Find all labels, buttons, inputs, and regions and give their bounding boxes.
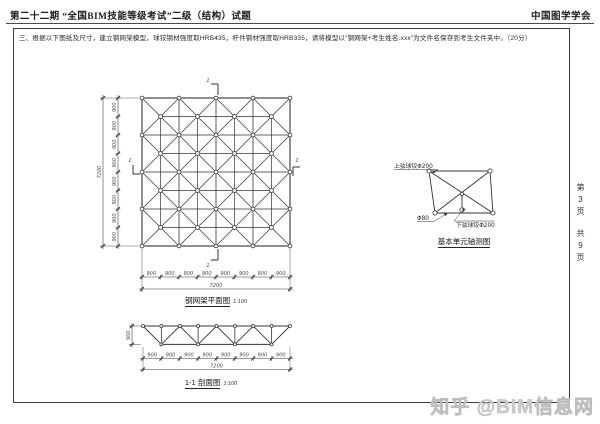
node-ball xyxy=(270,189,274,193)
node-ball xyxy=(214,244,218,248)
dim-label: 7200 xyxy=(210,363,223,369)
node-ball xyxy=(251,96,255,100)
dim-label: 900 xyxy=(258,352,268,358)
dim-label: 1 xyxy=(128,158,132,164)
dim-label: 900 xyxy=(220,271,230,277)
node-ball xyxy=(214,133,218,137)
member-line xyxy=(490,171,493,213)
node-ball xyxy=(491,211,495,215)
dim-label: 900 xyxy=(126,330,132,340)
node-ball xyxy=(159,226,163,230)
node-ball xyxy=(215,325,218,328)
node-ball xyxy=(270,343,273,346)
dim-label: 900 xyxy=(183,271,193,277)
member-line xyxy=(429,171,493,213)
dim-label: 900 xyxy=(276,271,286,277)
node-ball xyxy=(233,152,237,156)
node-ball xyxy=(270,115,274,119)
section-view-caption: 1-1 剖面图1:100 xyxy=(145,377,277,388)
node-ball xyxy=(433,211,437,215)
dim-label: 900 xyxy=(257,271,267,277)
member-line xyxy=(429,171,435,213)
page-number-column: 第 3 页 共 9 页 xyxy=(572,182,589,264)
node-ball xyxy=(270,325,273,328)
node-ball xyxy=(488,169,492,173)
node-ball xyxy=(140,96,144,100)
node-ball xyxy=(214,207,218,211)
node-ball xyxy=(196,152,200,156)
detail-drawing: 上弦球铰Φ200Φ80下弦球铰Φ200 xyxy=(390,150,535,236)
node-ball xyxy=(289,325,292,328)
page-char: 页 xyxy=(572,206,589,218)
node-ball xyxy=(270,226,274,230)
node-ball xyxy=(140,207,144,211)
node-ball xyxy=(288,207,292,211)
section-drawing: 9009009009009009009009009007200 xyxy=(105,314,305,376)
node-ball xyxy=(196,115,200,119)
node-ball xyxy=(251,244,255,248)
node-ball xyxy=(177,96,181,100)
dim-label: 上弦球铰Φ200 xyxy=(394,162,433,170)
dim-label: 7200 xyxy=(210,283,223,289)
node-ball xyxy=(288,133,292,137)
node-ball xyxy=(288,170,292,174)
dim-label: 900 xyxy=(112,139,118,149)
dim-label: 900 xyxy=(184,352,194,358)
detail-title-text: 基本单元轴测图 xyxy=(438,237,491,248)
dim-label: 1 xyxy=(206,263,210,269)
node-ball xyxy=(177,170,181,174)
dim-label: 900 xyxy=(112,102,118,112)
dim-label: 900 xyxy=(239,271,249,277)
node-ball xyxy=(233,115,237,119)
watermark: 知乎 @BIM信息网 xyxy=(430,392,594,419)
section-scale: 1:100 xyxy=(223,381,237,387)
node-ball xyxy=(160,325,163,328)
member-line xyxy=(454,213,461,222)
node-ball xyxy=(233,325,236,328)
plan-scale: 1:100 xyxy=(233,299,247,305)
node-ball xyxy=(251,133,255,137)
dim-label: 900 xyxy=(112,195,118,205)
node-ball xyxy=(197,343,200,346)
node-ball xyxy=(142,325,145,328)
node-ball xyxy=(214,96,218,100)
header-divider xyxy=(6,23,594,24)
page-char: 3 xyxy=(572,194,589,206)
page-title: 第二十二期 “全国BIM技能等级考试”二级（结构）试题 xyxy=(10,8,251,22)
node-ball xyxy=(159,189,163,193)
node-ball xyxy=(160,343,163,346)
node-ball xyxy=(140,170,144,174)
dim-label: 1 xyxy=(295,158,299,164)
dim-label: 900 xyxy=(202,271,212,277)
node-ball xyxy=(159,152,163,156)
plan-view-caption: 钢网架平面图1:100 xyxy=(140,295,292,306)
dim-label: 900 xyxy=(203,352,213,358)
node-ball xyxy=(177,133,181,137)
node-ball xyxy=(270,152,274,156)
dim-label: 900 xyxy=(147,352,157,358)
page-char: 第 xyxy=(572,182,589,194)
page-col-gap xyxy=(572,218,589,228)
dim-label: 900 xyxy=(112,232,118,242)
truss-diagonals xyxy=(143,326,290,344)
node-ball xyxy=(177,207,181,211)
detail-view-caption: 基本单元轴测图 xyxy=(407,236,521,247)
dim-label: 900 xyxy=(112,213,118,223)
dim-label: 900 xyxy=(112,176,118,186)
dim-label: 1 xyxy=(206,78,210,84)
dim-label: 900 xyxy=(166,352,176,358)
plan-title-text: 钢网架平面图 xyxy=(185,296,230,307)
plan-drawing: 1111900900900900900900900900720090090090… xyxy=(90,70,320,302)
node-ball xyxy=(197,325,200,328)
node-ball xyxy=(196,189,200,193)
organization-name: 中国图学学会 xyxy=(531,8,591,22)
dim-label: 900 xyxy=(165,271,175,277)
node-ball xyxy=(251,170,255,174)
node-ball xyxy=(196,226,200,230)
page-char: 共 xyxy=(572,228,589,240)
dim-label: 900 xyxy=(239,352,249,358)
node-ball xyxy=(140,244,144,248)
node-ball xyxy=(140,133,144,137)
node-ball xyxy=(460,192,463,195)
node-ball xyxy=(159,115,163,119)
page-char: 9 xyxy=(572,240,589,252)
leader-arrow xyxy=(444,212,449,216)
node-ball xyxy=(288,96,292,100)
dim-label: 900 xyxy=(221,352,231,358)
node-ball xyxy=(233,189,237,193)
dim-label: 900 xyxy=(276,352,286,358)
node-ball xyxy=(214,170,218,174)
member-line xyxy=(435,171,490,213)
dim-label: 7200 xyxy=(97,166,103,179)
node-ball xyxy=(177,244,181,248)
node-ball xyxy=(233,343,236,346)
node-ball xyxy=(251,207,255,211)
dim-label: 900 xyxy=(146,271,156,277)
dim-label: 下弦球铰Φ200 xyxy=(456,221,495,229)
exam-sheet-page: 第二十二期 “全国BIM技能等级考试”二级（结构）试题 中国图学学会 三、根据以… xyxy=(0,0,600,424)
section-title-text: 1-1 剖面图 xyxy=(185,378,220,389)
dim-label: 900 xyxy=(112,158,118,168)
node-ball xyxy=(178,325,181,328)
node-ball xyxy=(252,325,255,328)
node-ball xyxy=(233,226,237,230)
node-ball xyxy=(288,244,292,248)
dim-label: 900 xyxy=(112,121,118,131)
dim-label: Φ80 xyxy=(417,216,429,222)
page-char: 页 xyxy=(572,252,589,264)
question-text: 三、根据以下图纸及尺寸，建立钢网架模型，球铰钢材强度取HRB435，杆件钢材强度… xyxy=(19,35,559,43)
